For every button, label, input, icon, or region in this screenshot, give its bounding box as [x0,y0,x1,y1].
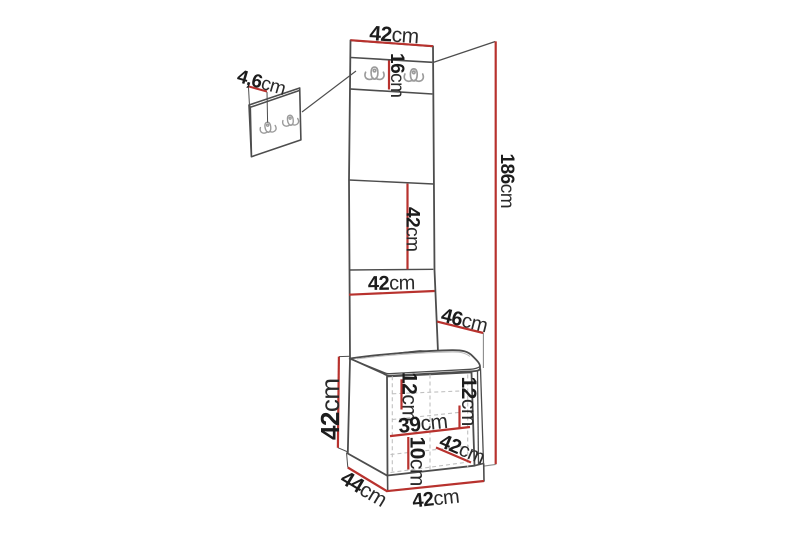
svg-text:42cm: 42cm [368,272,415,295]
svg-text:12cm: 12cm [457,377,480,426]
svg-text:42cm: 42cm [369,22,420,48]
svg-text:16cm: 16cm [386,53,407,97]
svg-text:42cm: 42cm [315,378,345,440]
svg-text:42cm: 42cm [402,207,423,251]
svg-text:10cm: 10cm [406,437,429,486]
svg-text:186cm: 186cm [496,154,517,209]
